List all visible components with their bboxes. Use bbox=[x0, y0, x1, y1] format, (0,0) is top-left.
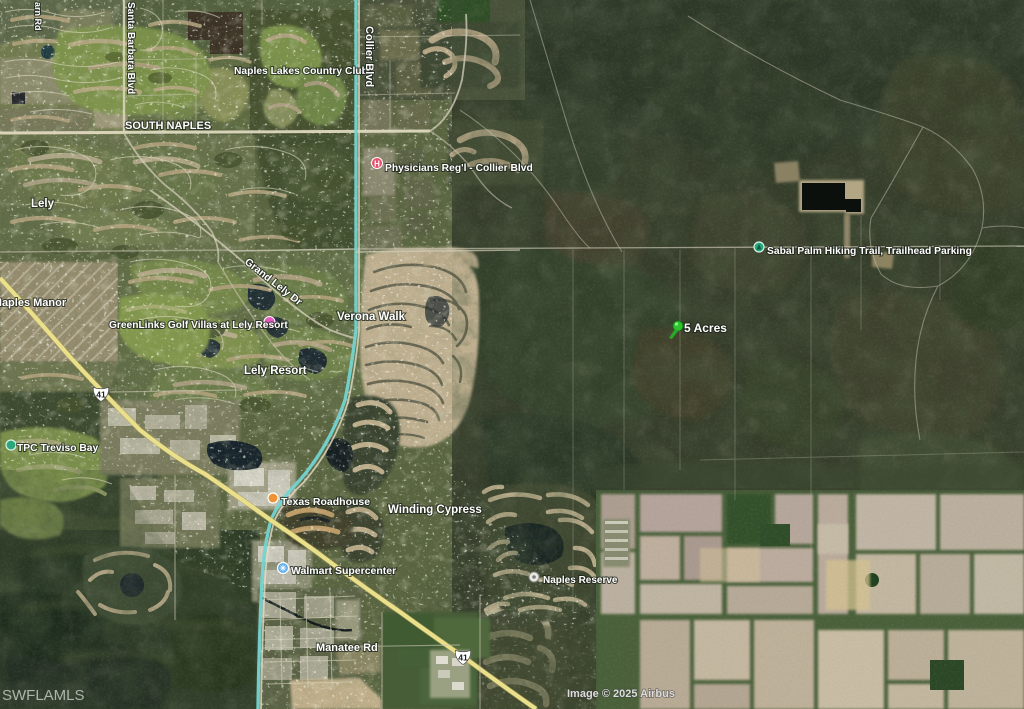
svg-text:Image © 2025 Airbus: Image © 2025 Airbus bbox=[567, 688, 675, 700]
svg-text:Physicians Reg'l - Collier Blv: Physicians Reg'l - Collier Blvd bbox=[385, 163, 533, 174]
svg-text:41: 41 bbox=[458, 652, 468, 662]
svg-text:Naples Lakes Country Club: Naples Lakes Country Club bbox=[234, 66, 368, 77]
svg-text:5 Acres: 5 Acres bbox=[684, 321, 727, 335]
svg-text:Santa Barbara Blvd: Santa Barbara Blvd bbox=[125, 2, 136, 94]
svg-text:Sabal Palm Hiking Trail, Trail: Sabal Palm Hiking Trail, Trailhead Parki… bbox=[767, 246, 972, 257]
svg-text:Lely: Lely bbox=[31, 198, 55, 210]
svg-text:arn Rd: arn Rd bbox=[33, 2, 43, 31]
svg-text:Verona Walk: Verona Walk bbox=[337, 311, 406, 323]
svg-text:Texas Roadhouse: Texas Roadhouse bbox=[281, 496, 370, 508]
svg-text:TPC Treviso Bay: TPC Treviso Bay bbox=[17, 443, 99, 454]
svg-text:H: H bbox=[374, 160, 380, 169]
svg-text:Walmart Supercenter: Walmart Supercenter bbox=[291, 565, 396, 577]
svg-text:Manatee Rd: Manatee Rd bbox=[316, 642, 378, 654]
svg-text:SWFLAMLS: SWFLAMLS bbox=[2, 687, 85, 704]
svg-text:Naples Reserve: Naples Reserve bbox=[543, 575, 618, 586]
svg-text:Naples Manor: Naples Manor bbox=[0, 297, 67, 309]
svg-text:41: 41 bbox=[96, 389, 106, 399]
svg-text:GreenLinks Golf Villas at Lely: GreenLinks Golf Villas at Lely Resort bbox=[109, 320, 288, 331]
svg-text:SOUTH NAPLES: SOUTH NAPLES bbox=[125, 120, 211, 132]
svg-text:Winding Cypress: Winding Cypress bbox=[388, 504, 482, 516]
svg-text:Lely Resort: Lely Resort bbox=[244, 365, 307, 377]
svg-text:Collier Blvd: Collier Blvd bbox=[363, 26, 375, 87]
